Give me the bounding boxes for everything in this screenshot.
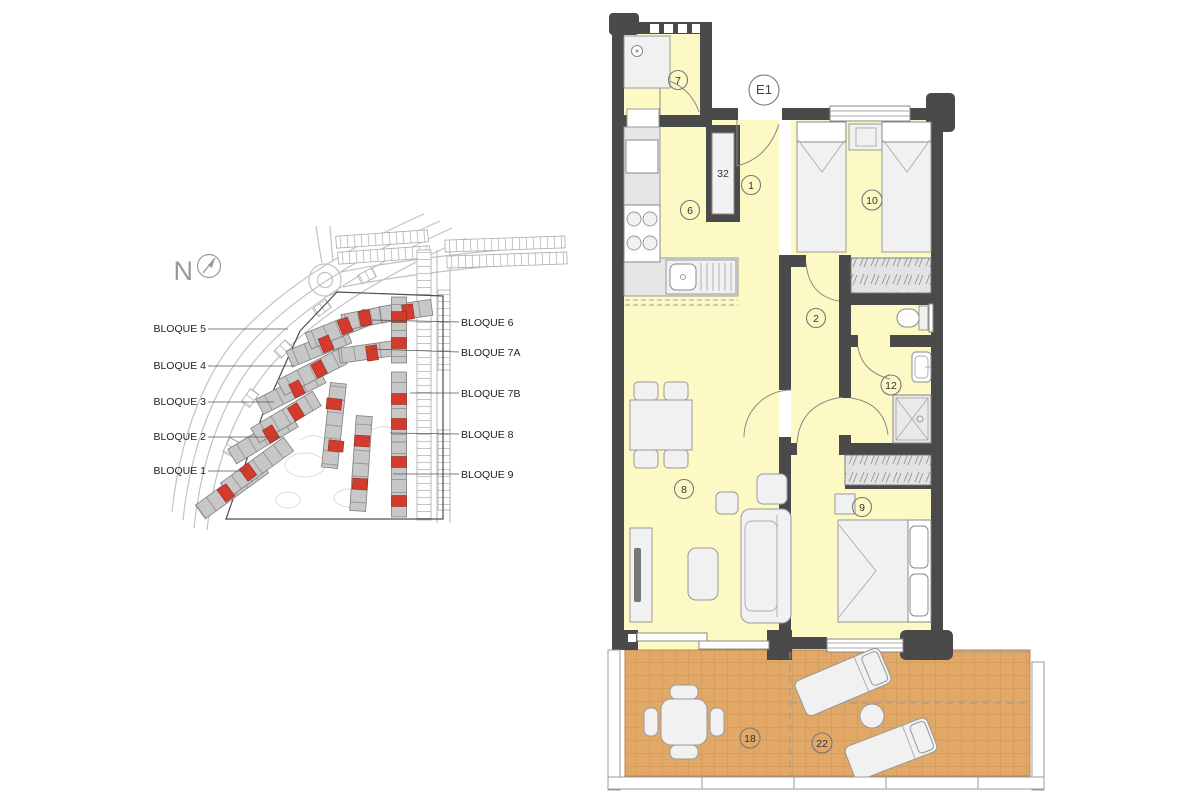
bloque-9-label: BLOQUE 9 <box>461 469 514 481</box>
room-number-bedroom1: 9 <box>859 502 865 514</box>
room-number-entrance: 1 <box>748 180 754 192</box>
bloque-5-label: BLOQUE 5 <box>153 323 206 335</box>
highlighted-unit <box>392 496 407 507</box>
room-number-hall: 2 <box>813 313 819 325</box>
bedroom2-window <box>830 106 910 121</box>
bloque-7a-label: BLOQUE 7A <box>461 347 521 359</box>
lounge-side-table <box>860 704 884 728</box>
highlighted-unit <box>392 419 407 430</box>
wardrobe <box>851 258 931 293</box>
tv-unit <box>630 528 652 622</box>
room-number-kitchen: 6 <box>687 205 693 217</box>
stove <box>624 205 660 262</box>
highlighted-unit <box>366 345 379 361</box>
sofa <box>741 509 791 623</box>
site-plan: N BLOQUE 5 BLOQUE 4 BLOQUE 3 BLOQUE 2 BL… <box>153 214 567 530</box>
kitchen-sink <box>666 260 736 294</box>
highlighted-unit <box>392 394 407 405</box>
highlighted-unit <box>392 338 407 349</box>
fridge <box>626 140 658 173</box>
roundabout <box>309 264 341 296</box>
nightstand <box>849 124 882 150</box>
bedroom1-furniture <box>835 455 931 622</box>
highlighted-unit <box>392 457 407 468</box>
room-number-utility: 7 <box>675 75 681 87</box>
highlighted-unit <box>328 440 344 453</box>
nightstand <box>835 494 855 514</box>
duct-number: 32 <box>717 168 729 180</box>
bloque-4-label: BLOQUE 4 <box>153 360 206 372</box>
building-strip <box>322 382 347 468</box>
room-number-bathroom: 12 <box>885 380 897 392</box>
side-table <box>716 492 738 514</box>
north-label: N <box>174 256 194 286</box>
north-indicator: N <box>174 255 221 287</box>
washbasin <box>912 352 931 382</box>
bloque-3-label: BLOQUE 3 <box>153 396 206 408</box>
bloque-6-label: BLOQUE 6 <box>461 317 514 329</box>
double-bed <box>838 520 931 622</box>
highlighted-unit <box>354 435 370 447</box>
twin-bed-right <box>882 122 931 252</box>
highlighted-unit <box>326 398 342 411</box>
bloque-1-label: BLOQUE 1 <box>153 465 206 477</box>
unit-badge: E1 <box>749 75 779 105</box>
highlighted-unit <box>352 478 368 490</box>
bedroom1-window <box>827 639 903 652</box>
wardrobe <box>845 455 931 485</box>
room-number-terrace-lounge: 22 <box>816 738 828 750</box>
building-strip <box>350 416 373 512</box>
apartment-floor-plan: 32 <box>608 13 1044 790</box>
bloque-7b-label: BLOQUE 7B <box>461 388 521 400</box>
side-table <box>757 474 787 504</box>
washing-machine <box>624 36 670 88</box>
room-number-terrace-dining: 18 <box>744 733 756 745</box>
floorplan-sheet: N BLOQUE 5 BLOQUE 4 BLOQUE 3 BLOQUE 2 BL… <box>0 0 1200 800</box>
twin-bed-left <box>797 122 846 252</box>
bloque-8-label: BLOQUE 8 <box>461 429 514 441</box>
room-number-living: 8 <box>681 484 687 496</box>
unit-label: E1 <box>756 82 772 97</box>
shower <box>893 395 931 443</box>
bloque-2-label: BLOQUE 2 <box>153 431 206 443</box>
coffee-table <box>688 548 718 600</box>
room-number-bedroom2: 10 <box>866 195 878 207</box>
building-strips <box>195 297 432 519</box>
